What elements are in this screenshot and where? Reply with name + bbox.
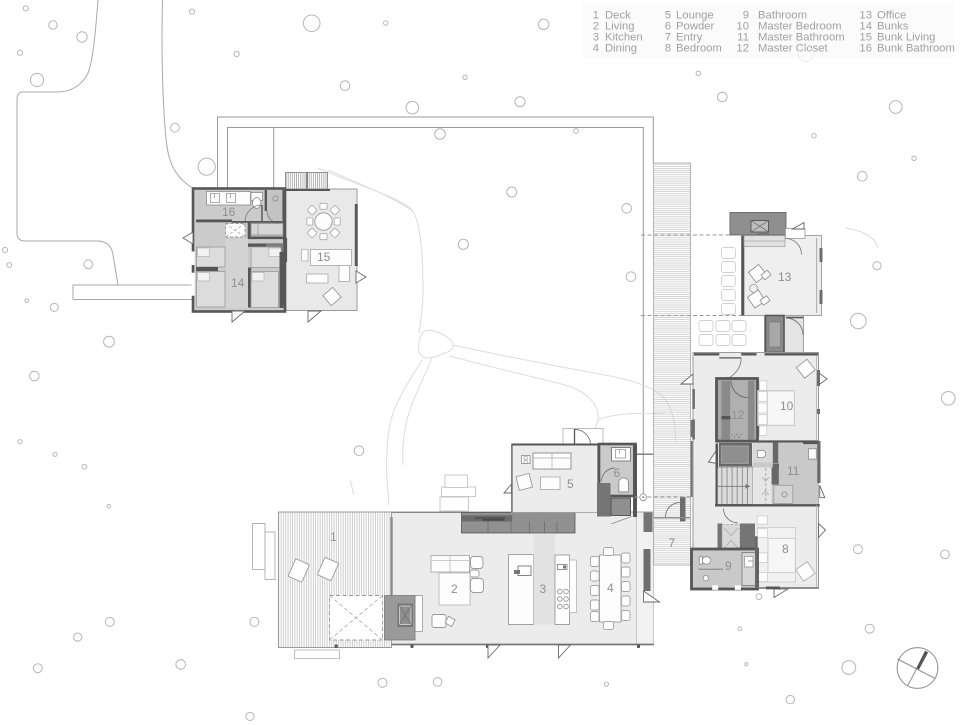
svg-text:11: 11: [787, 464, 800, 478]
svg-text:4: 4: [593, 43, 599, 55]
svg-text:3: 3: [540, 582, 547, 596]
svg-text:4: 4: [607, 581, 614, 595]
svg-text:Bedroom: Bedroom: [676, 43, 722, 55]
svg-text:8: 8: [665, 43, 671, 55]
svg-text:16: 16: [859, 43, 872, 55]
svg-text:8: 8: [782, 542, 789, 556]
svg-text:9: 9: [725, 559, 732, 573]
svg-text:13: 13: [778, 270, 792, 284]
svg-text:6: 6: [614, 466, 621, 480]
svg-text:7: 7: [669, 536, 676, 550]
svg-text:12: 12: [736, 43, 749, 55]
svg-text:5: 5: [567, 477, 574, 491]
svg-text:16: 16: [222, 205, 236, 219]
svg-text:Dining: Dining: [605, 43, 637, 55]
svg-text:Master Closet: Master Closet: [758, 43, 829, 55]
svg-text:15: 15: [317, 250, 331, 264]
svg-text:2: 2: [451, 582, 458, 596]
svg-text:Bunk Bathroom: Bunk Bathroom: [877, 43, 955, 55]
svg-text:14: 14: [231, 276, 245, 290]
svg-text:12: 12: [731, 408, 745, 422]
svg-text:1: 1: [330, 530, 337, 544]
svg-text:10: 10: [780, 399, 794, 413]
